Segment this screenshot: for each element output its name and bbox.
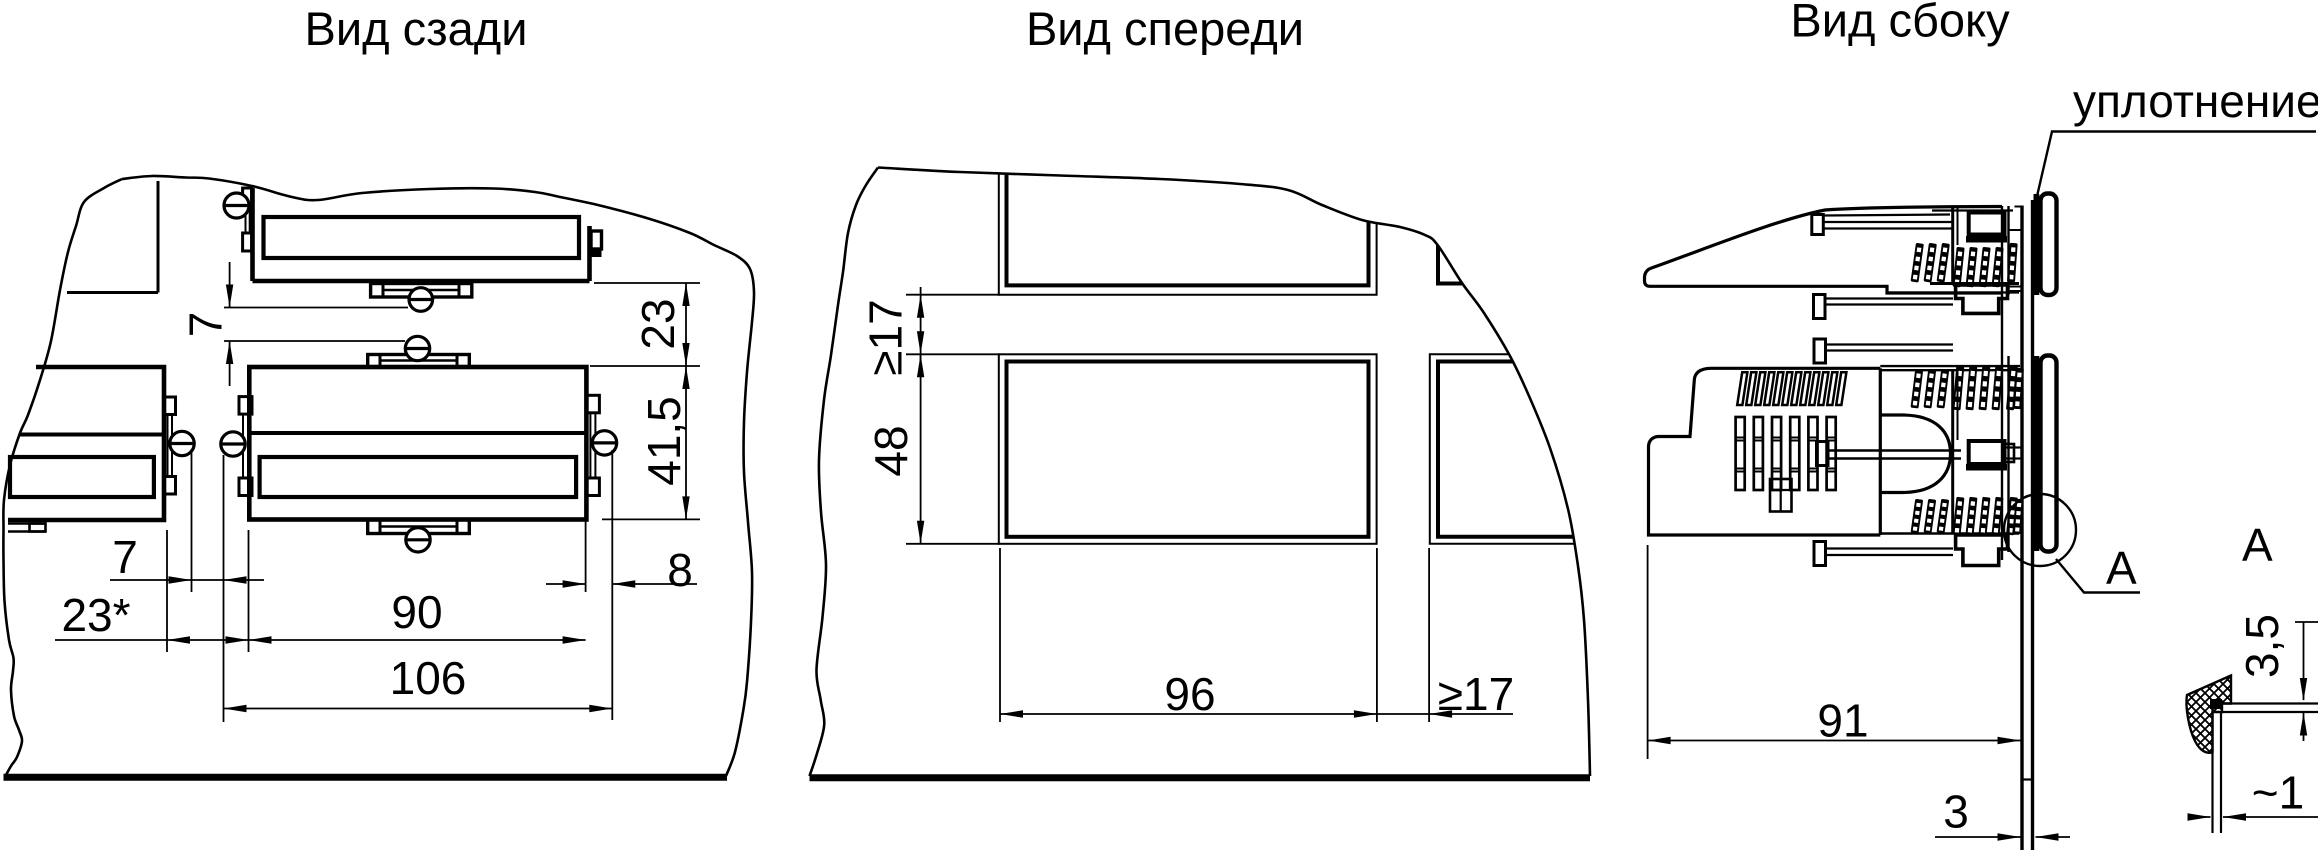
svg-text:91: 91 (1817, 695, 1868, 747)
svg-text:А: А (2242, 519, 2273, 571)
svg-text:Вид сбоку: Вид сбоку (1790, 0, 2010, 47)
svg-text:8: 8 (667, 544, 693, 596)
svg-text:48: 48 (865, 425, 917, 476)
svg-text:3,5: 3,5 (2236, 614, 2288, 678)
svg-text:Вид сзади: Вид сзади (305, 2, 528, 55)
svg-text:23*: 23* (61, 589, 130, 641)
svg-text:А: А (2106, 542, 2137, 594)
svg-text:7: 7 (180, 312, 232, 338)
svg-text:96: 96 (1164, 668, 1215, 720)
svg-text:≥17: ≥17 (1438, 668, 1514, 720)
svg-text:23: 23 (632, 298, 684, 349)
svg-text:Вид спереди: Вид спереди (1026, 2, 1304, 55)
svg-text:7: 7 (112, 531, 138, 583)
svg-text:уплотнение: уплотнение (2073, 75, 2318, 127)
svg-text:~1: ~1 (2252, 767, 2304, 819)
svg-text:106: 106 (390, 652, 467, 704)
svg-text:90: 90 (391, 586, 442, 638)
svg-text:3: 3 (1943, 786, 1969, 838)
svg-text:≥17: ≥17 (860, 299, 912, 375)
svg-text:41,5: 41,5 (638, 396, 690, 486)
